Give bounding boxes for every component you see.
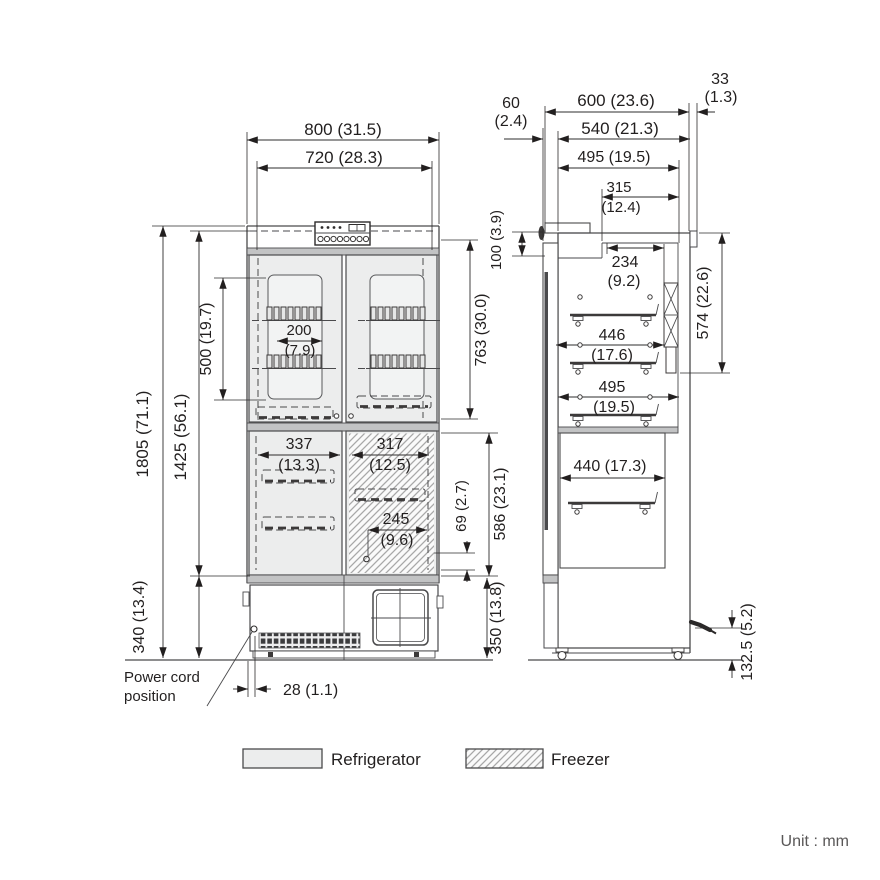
fan-duct [664,283,678,373]
dim-cabinet-height: 1425 (56.1) [171,394,190,481]
legend-label-freezer: Freezer [551,750,610,769]
rear-spacer [690,231,697,247]
freezer-hatch-area [349,434,434,574]
dimension-drawing-page: 800 (31.5) 720 (28.3) 1805 (71.1) 1425 (… [0,0,880,880]
dim-upper-inner-height: 574 (22.6) [695,267,712,340]
legend-label-refrigerator: Refrigerator [331,750,421,769]
dim-rack-width-in: (7.9) [285,342,316,359]
base-front-panel [544,583,558,648]
base-hinge-right [437,596,443,608]
dim-rear-gap-in: (1.3) [705,89,738,106]
dim-lower-left-in: (13.3) [278,457,320,474]
dim-lower-inner-depth: 440 (17.3) [574,458,647,475]
top-panel-hump [545,223,590,233]
dim-inner-depth-in: (19.5) [593,399,635,416]
dim-top-recess-in: (12.4) [601,199,640,216]
dim-upper-door-height: 763 (30.0) [473,294,490,367]
door-lock-left [334,414,339,419]
legend-swatch-freezer [466,749,543,768]
dimension-drawing: 800 (31.5) 720 (28.3) 1805 (71.1) 1425 (… [0,0,880,880]
power-cord-point [251,626,257,632]
lower-compartment [560,433,665,568]
side-view: 600 (23.6) 33 (1.3) 60 (2.4) 540 (21.3) … [488,71,756,681]
dim-overall-height: 1805 (71.1) [133,391,152,478]
dim-freezer-mm: 317 [377,436,404,453]
ventilation-grille [259,633,360,648]
dim-freezer-inner-in: (9.6) [381,532,414,549]
dim-rack-width-mm: 200 [286,322,311,339]
dim-shelf-depth-in: (17.6) [591,347,633,364]
power-cord [691,622,710,630]
power-cord-label-1: Power cord [124,669,200,686]
power-cord-label-2: position [124,688,176,705]
dim-duct-depth-mm: 234 [612,254,639,271]
base-hinge-left [243,592,249,606]
right-door-window [370,275,424,399]
dim-cord-offset: 28 (1.1) [283,682,338,699]
dim-top-step: 100 (3.9) [488,210,505,270]
dim-rear-gap-mm: 33 [711,71,729,88]
dim-freezer-inner-mm: 245 [383,511,410,528]
dim-overall-depth: 600 (23.6) [577,91,655,110]
door-gasket [545,272,549,530]
dim-duct-depth-in: (9.2) [608,273,641,290]
dim-door-thickness-in: (2.4) [495,113,528,130]
dim-window-height: 500 (19.7) [198,303,215,376]
dim-shelf-depth-mm: 446 [599,327,626,344]
front-view: 800 (31.5) 720 (28.3) 1805 (71.1) 1425 (… [124,120,509,706]
dim-freezer-offset: 69 (2.7) [453,480,470,532]
dim-freezer-in: (12.5) [369,457,411,474]
legend: Refrigerator Freezer [243,749,610,769]
dim-cord-height: 132.5 (5.2) [739,603,756,680]
dim-door-width: 720 (28.3) [305,148,383,167]
dim-top-inner-depth: 495 (19.5) [578,149,651,166]
dim-overall-width: 800 (31.5) [304,120,382,139]
top-hinge [539,226,545,240]
dim-base-height: 340 (13.4) [131,581,148,654]
control-panel [315,222,370,245]
legend-swatch-refrigerator [243,749,322,768]
dim-lower-left-mm: 337 [286,436,313,453]
dim-lower-door-height: 586 (23.1) [492,468,509,541]
dim-door-thickness-mm: 60 [502,95,520,112]
dim-machine-height: 350 (13.8) [488,582,505,655]
dim-top-recess-mm: 315 [606,179,631,196]
dim-body-depth: 540 (21.3) [581,119,659,138]
dim-inner-depth-mm: 495 [599,379,626,396]
unit-note: Unit : mm [781,833,849,850]
door-lock-right [349,414,354,419]
casters [556,648,684,660]
